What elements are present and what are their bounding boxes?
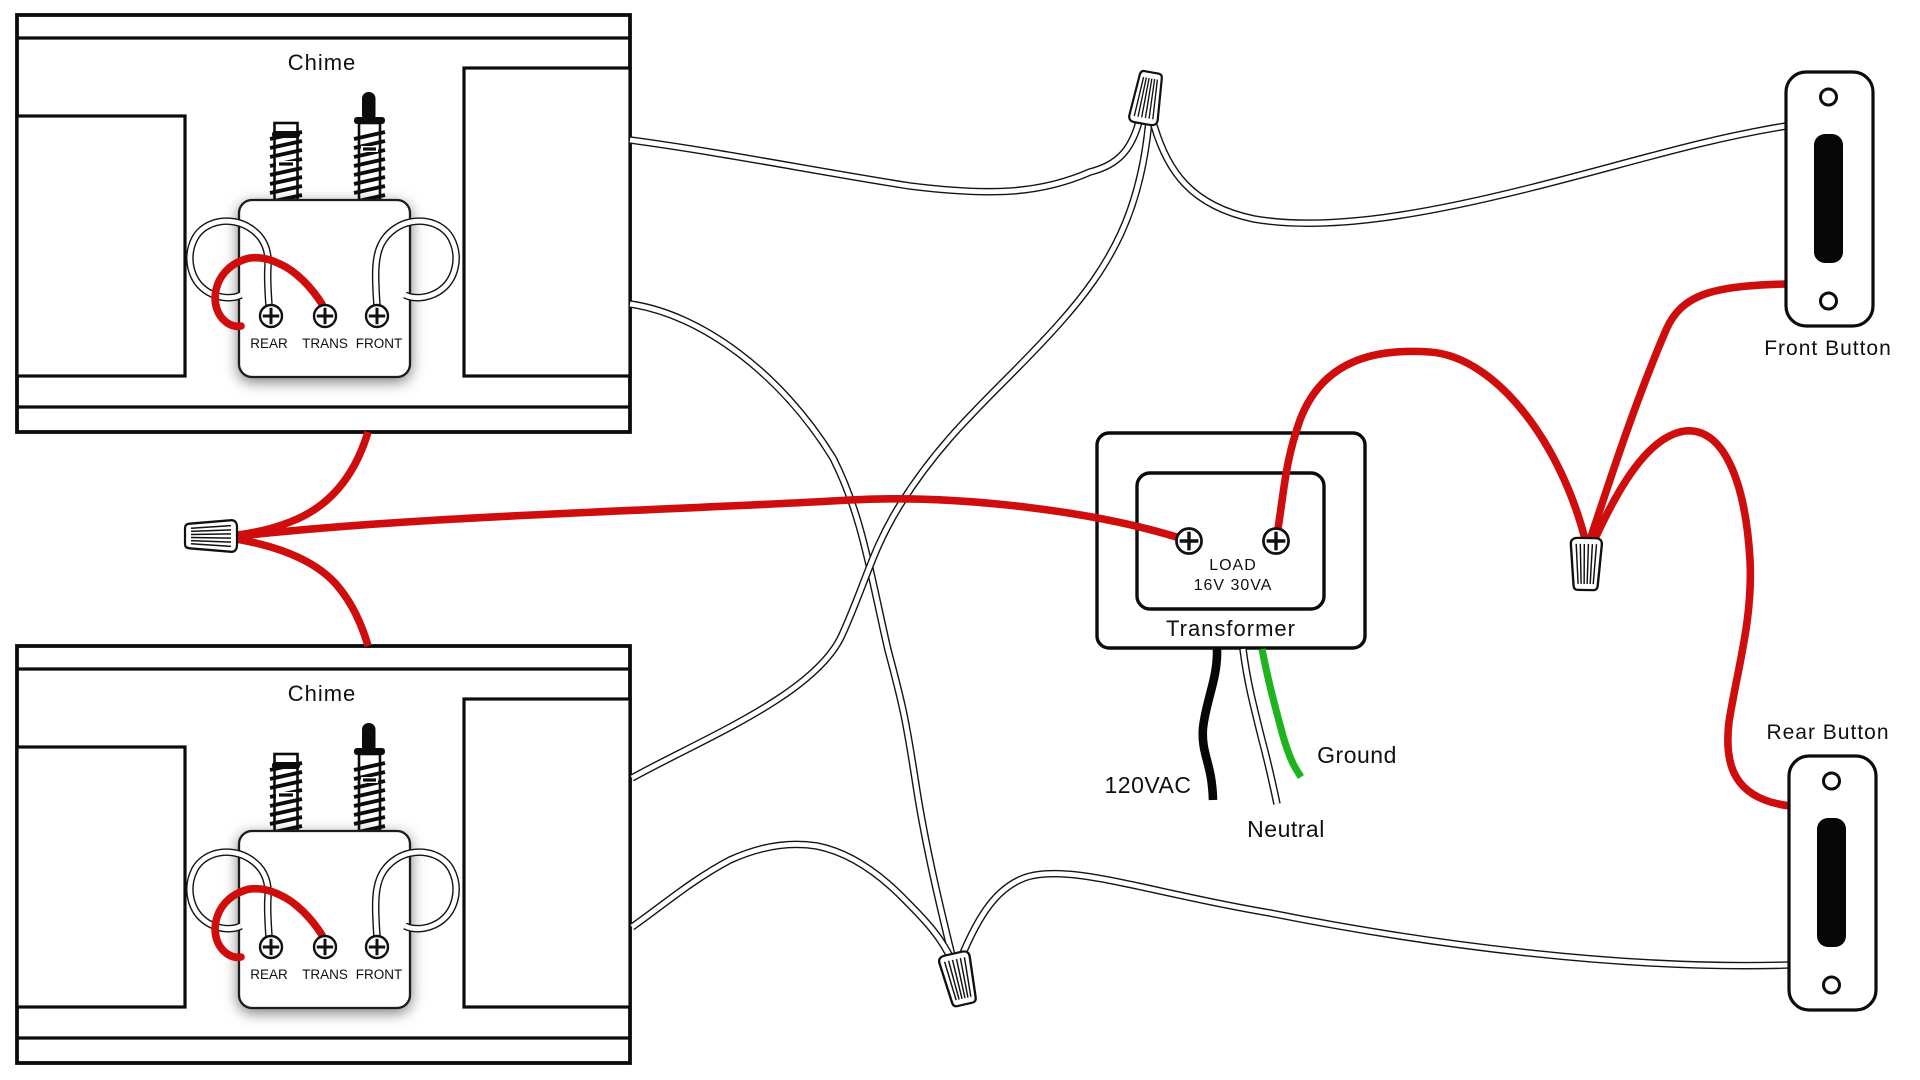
- svg-text:120VAC: 120VAC: [1105, 772, 1192, 798]
- svg-text:Front Button: Front Button: [1764, 337, 1892, 360]
- svg-text:LOAD: LOAD: [1209, 557, 1257, 574]
- svg-text:16V 30VA: 16V 30VA: [1194, 577, 1273, 594]
- svg-text:Transformer: Transformer: [1166, 616, 1296, 641]
- svg-text:Ground: Ground: [1317, 742, 1397, 768]
- svg-text:Rear Button: Rear Button: [1766, 721, 1889, 744]
- svg-text:Neutral: Neutral: [1247, 816, 1325, 842]
